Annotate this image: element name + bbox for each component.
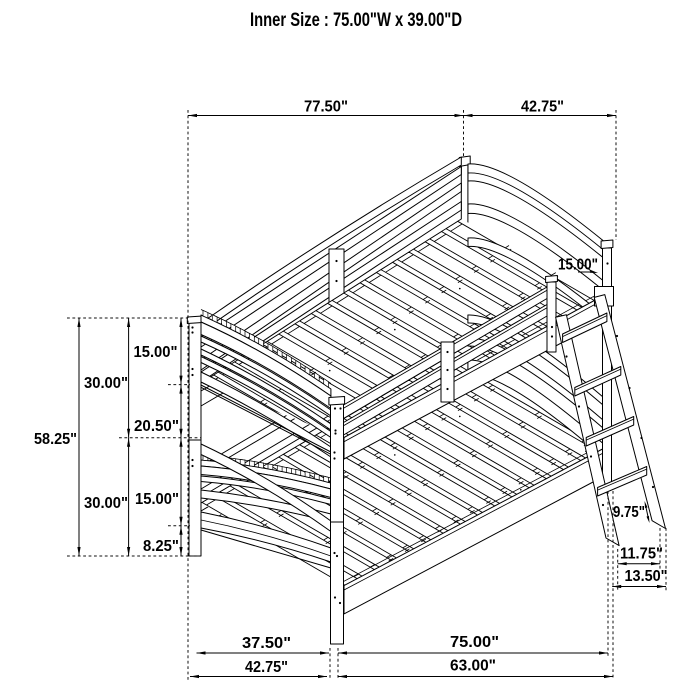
svg-text:77.50": 77.50": [304, 99, 348, 116]
svg-text:37.50": 37.50": [242, 635, 291, 652]
svg-text:30.00": 30.00": [84, 375, 128, 392]
svg-text:75.00": 75.00": [450, 634, 499, 651]
svg-text:11.75": 11.75": [620, 546, 663, 563]
svg-text:58.25": 58.25": [34, 431, 77, 448]
svg-text:30.00": 30.00": [84, 495, 128, 512]
svg-text:8.25": 8.25": [143, 538, 179, 555]
svg-text:63.00": 63.00": [450, 658, 496, 675]
svg-text:Inner Size : 75.00"W x 39.00"D: Inner Size : 75.00"W x 39.00"D: [250, 9, 462, 31]
svg-text:13.50": 13.50": [625, 568, 668, 585]
svg-text:42.75": 42.75": [521, 99, 564, 116]
svg-text:15.00": 15.00": [135, 491, 179, 508]
svg-text:15.00": 15.00": [134, 344, 178, 361]
svg-text:20.50": 20.50": [134, 418, 179, 435]
svg-text:42.75": 42.75": [245, 659, 288, 676]
svg-text:9.75": 9.75": [613, 504, 645, 521]
